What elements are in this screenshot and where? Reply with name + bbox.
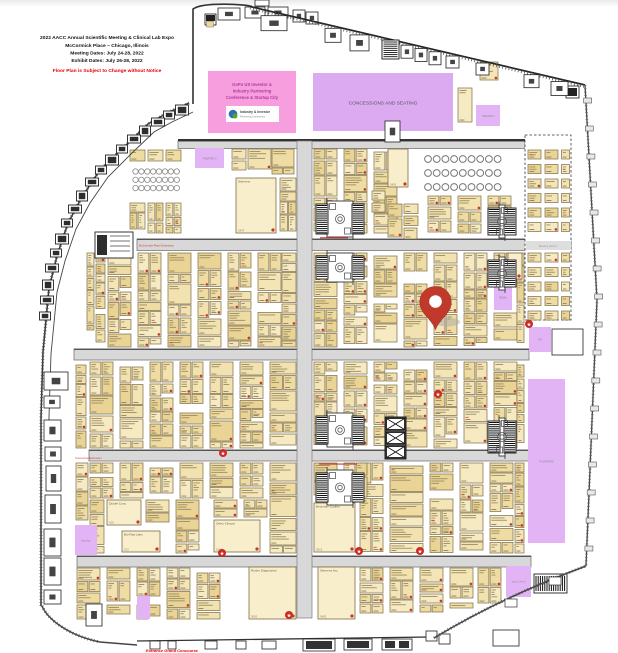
svg-text:SALES OFFICE: SALES OFFICE bbox=[511, 581, 526, 584]
svg-text:VIP: VIP bbox=[538, 339, 542, 342]
svg-text:Siemens Am.: Siemens Am. bbox=[320, 569, 338, 573]
svg-text:Roche Diagnostics: Roche Diagnostics bbox=[251, 569, 277, 573]
svg-text:513: 513 bbox=[124, 548, 129, 552]
svg-text:Conference & Startup City: Conference & Startup City bbox=[226, 95, 279, 100]
svg-text:Industry & Investor: Industry & Investor bbox=[240, 110, 271, 114]
svg-text:Ortho Clinical: Ortho Clinical bbox=[216, 522, 235, 526]
svg-text:McCormick Place ~ Chicago, Ill: McCormick Place ~ Chicago, Illinois bbox=[65, 43, 149, 49]
svg-text:Partnering Conference: Partnering Conference bbox=[240, 116, 266, 119]
svg-text:Industry Partnering: Industry Partnering bbox=[233, 89, 272, 94]
svg-text:THEATER 2: THEATER 2 bbox=[202, 157, 217, 161]
svg-text:1847: 1847 bbox=[238, 229, 245, 233]
svg-text:Floor Plan is Subject to Chang: Floor Plan is Subject to Change without … bbox=[53, 68, 162, 74]
svg-text:Meeting Rooms: Meeting Rooms bbox=[539, 244, 558, 248]
svg-text:Entrance Grand Concourse: Entrance Grand Concourse bbox=[146, 648, 199, 653]
svg-text:3613: 3613 bbox=[316, 548, 323, 552]
svg-text:415: 415 bbox=[109, 521, 114, 525]
svg-text:Concourse Extension: Concourse Extension bbox=[75, 456, 102, 460]
svg-text:3002: 3002 bbox=[251, 615, 258, 619]
svg-text:MEDIA: MEDIA bbox=[499, 297, 507, 300]
svg-text:Quidel Corp.: Quidel Corp. bbox=[109, 502, 127, 506]
svg-text:McCormick Place Extension: McCormick Place Extension bbox=[139, 244, 174, 248]
svg-text:POSTERS: POSTERS bbox=[539, 460, 553, 464]
svg-text:Bio-Rad Labs: Bio-Rad Labs bbox=[124, 533, 143, 537]
svg-text:CONCESSIONS AND SEATING: CONCESSIONS AND SEATING bbox=[349, 101, 418, 107]
svg-text:GoPo US Investor &: GoPo US Investor & bbox=[232, 82, 272, 87]
svg-text:THEATER 1: THEATER 1 bbox=[482, 115, 496, 118]
svg-text:2022 AACC Annual Scientific Me: 2022 AACC Annual Scientific Meeting & Cl… bbox=[40, 35, 174, 41]
svg-text:Exhibit Dates: July 26-28, 202: Exhibit Dates: July 26-28, 2022 bbox=[71, 58, 142, 64]
svg-text:3402: 3402 bbox=[320, 615, 327, 619]
svg-text:2403: 2403 bbox=[390, 183, 397, 187]
svg-text:Siemens: Siemens bbox=[238, 180, 250, 184]
svg-text:MINDRAY: MINDRAY bbox=[81, 540, 91, 543]
svg-text:Meeting Dates: July 24-28, 202: Meeting Dates: July 24-28, 2022 bbox=[70, 51, 144, 57]
